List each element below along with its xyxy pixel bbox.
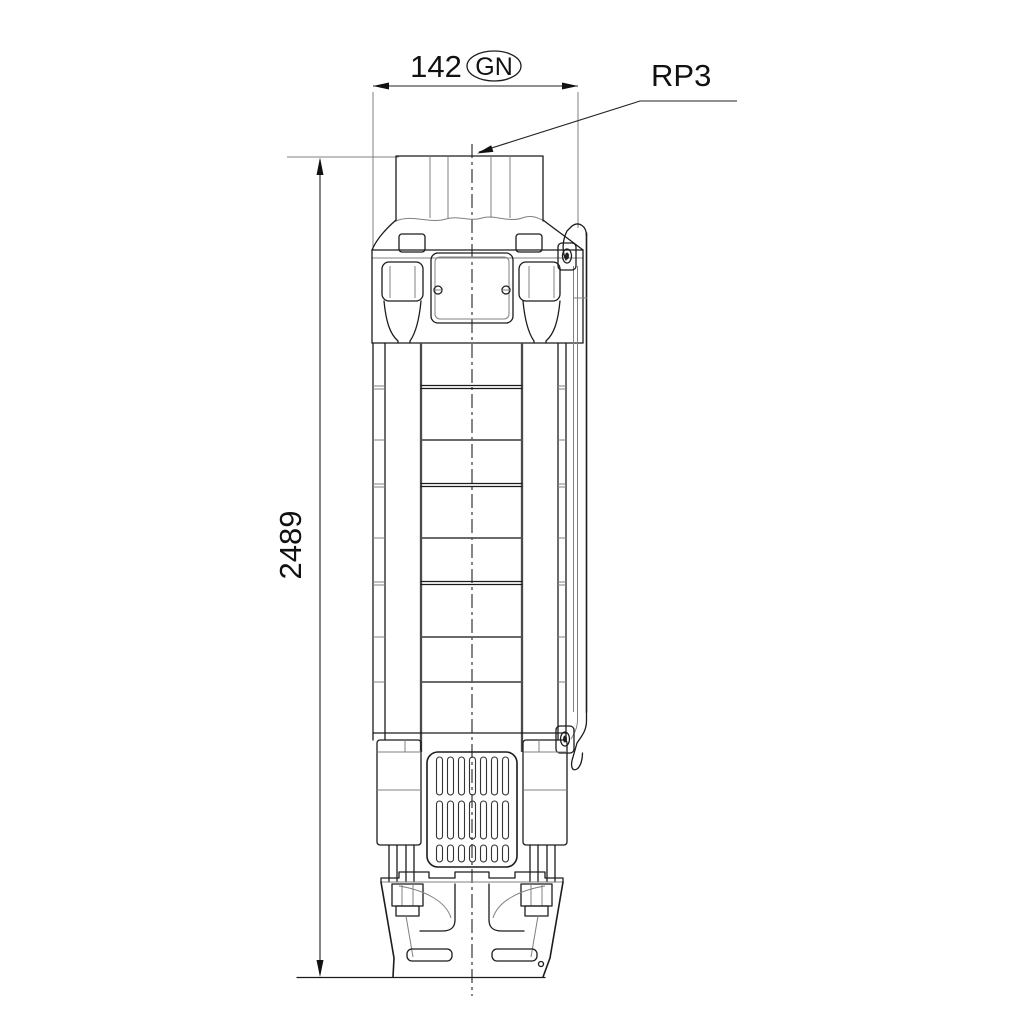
- connection-callout: RP3: [477, 58, 737, 154]
- cable-clamp-left: [382, 262, 423, 343]
- width-dimension: 142 GN: [373, 49, 578, 250]
- leader-line: [479, 101, 737, 152]
- strap-right: [558, 343, 566, 740]
- pump-dimensional-drawing: 142 GN RP3 2489: [0, 0, 1024, 1024]
- discharge-thread: [372, 156, 583, 250]
- motor-side-right: [543, 882, 563, 977]
- guard-clamp-top: [558, 243, 576, 270]
- strap-bracket-right: [523, 740, 567, 845]
- shaft-housing-right: [489, 884, 524, 931]
- arrowhead-left: [373, 83, 389, 90]
- arrowhead-bottom: [317, 960, 324, 977]
- motor-foot-left: [407, 949, 452, 961]
- motor-bolt-left: [392, 884, 423, 957]
- width-dimension-text: 142: [410, 49, 462, 84]
- motor-bolt-right: [521, 884, 552, 957]
- technical-drawing-page: 142 GN RP3 2489: [0, 0, 1024, 1024]
- valve-casing: [372, 234, 583, 343]
- shaft-housing-left: [420, 884, 455, 931]
- cable-clamp-right: [519, 262, 560, 343]
- height-dimension-text: 2489: [273, 511, 308, 580]
- height-dimension: 2489: [273, 157, 545, 978]
- cable-clamp-tab-right: [516, 234, 542, 252]
- suction-strainer: [377, 740, 567, 882]
- chamber-stack: [373, 343, 567, 752]
- cable-clamp-tab-left: [399, 234, 425, 252]
- motor-foot-right: [492, 949, 537, 961]
- arrowhead-top: [317, 158, 324, 176]
- connection-label-text: RP3: [651, 58, 711, 93]
- leader-arrowhead: [477, 145, 493, 153]
- arrowhead-right: [562, 83, 578, 90]
- grid-ref-text: GN: [475, 53, 513, 81]
- strap-bracket-left: [377, 740, 421, 845]
- strap-left: [373, 343, 385, 740]
- drain-hole: [539, 962, 544, 967]
